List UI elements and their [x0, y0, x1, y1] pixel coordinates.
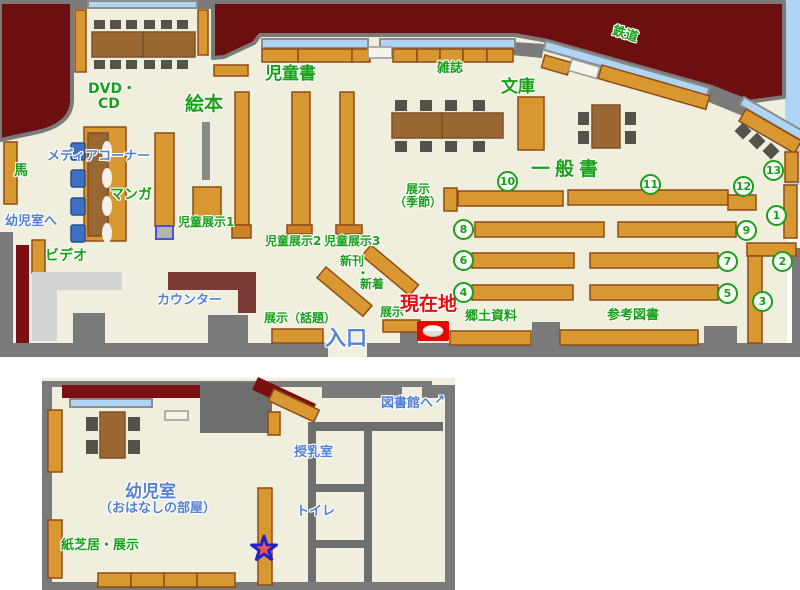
room-wall: [308, 540, 372, 548]
label-kids-display-3: 児童展示3: [324, 235, 380, 248]
bookshelf: [463, 49, 487, 62]
table: [592, 105, 620, 148]
bookshelf: [235, 92, 249, 225]
wall-right: [445, 392, 455, 590]
table: [92, 32, 143, 57]
label-bunko: 文庫: [501, 79, 535, 97]
bookshelf: [292, 92, 310, 225]
bookshelf: [393, 49, 417, 62]
wall-segment: [62, 385, 200, 398]
wall: [208, 315, 248, 344]
shelf-number-1: 1: [766, 205, 787, 226]
label-kamishibai-display: 紙芝居・展示: [61, 539, 139, 553]
bookshelf: [48, 520, 62, 578]
label-current-location: 現在地: [400, 295, 457, 315]
label-new-arrivals-2: 新着: [360, 278, 384, 291]
table: [392, 113, 442, 138]
label-media-corner: メディアコーナー: [47, 150, 150, 164]
shelf-number-13: 13: [763, 160, 784, 181]
shelf-number-8: 8: [453, 219, 474, 240]
room-wall: [364, 430, 372, 582]
media-seat: [102, 223, 112, 243]
bookshelf: [131, 573, 164, 587]
exterior-block-topleft: [0, 2, 72, 140]
bookshelf: [198, 10, 208, 55]
bookshelf-6: [472, 253, 574, 268]
chair: [71, 198, 85, 215]
label-magazines: 雑誌: [437, 62, 463, 76]
wall: [196, 0, 214, 9]
chair: [71, 170, 85, 187]
window: [262, 39, 368, 48]
picture-book-stand: [202, 122, 210, 180]
bookshelf-4: [472, 285, 573, 300]
label-general-books: 一般書: [531, 160, 603, 180]
display-stand: [156, 226, 173, 239]
bookshelf: [298, 49, 352, 62]
label-topic-display: 展示（話題）: [264, 312, 336, 325]
bookshelf-10: [458, 191, 563, 206]
shelf-number-2: 2: [772, 251, 793, 272]
wall-bottom-left: [0, 343, 328, 357]
bookshelf-12: [728, 195, 756, 210]
room-wall: [308, 484, 372, 492]
window: [88, 1, 197, 8]
label-kids-room: 幼児室: [125, 484, 176, 502]
media-seat: [102, 168, 112, 188]
bookshelf-5: [590, 285, 718, 300]
bookshelf: [214, 65, 248, 76]
bookshelf-7: [590, 253, 718, 268]
bookshelf: [487, 49, 513, 62]
shelf-number-4: 4: [453, 282, 474, 303]
shelf-endcap: [232, 225, 251, 238]
shelf-number-11: 11: [640, 174, 661, 195]
label-to-library: 図書館へ: [381, 397, 433, 411]
shelf-number-12: 12: [733, 176, 754, 197]
shelf-number-7: 7: [717, 251, 738, 272]
shelf-endcap: [287, 225, 312, 234]
label-entrance: 入口: [325, 327, 367, 349]
bookshelf: [98, 573, 131, 587]
shelf-number-5: 5: [717, 283, 738, 304]
bookshelf: [340, 92, 354, 225]
label-kids-display-2: 児童展示2: [265, 235, 321, 248]
label-counter: カウンター: [157, 294, 222, 308]
bookshelf-9: [618, 222, 736, 237]
reference-books-shelf: [560, 330, 698, 345]
shelf-number-6: 6: [453, 250, 474, 271]
label-childrens-books: 児童書: [265, 66, 316, 84]
label-manga: マンガ: [110, 188, 152, 203]
display-shelf: [272, 329, 323, 343]
wall-segment-left: [16, 245, 29, 343]
wall-right: [792, 248, 800, 357]
wall: [704, 326, 737, 344]
display-stand: [368, 47, 392, 58]
label-story-room: （おはなしの部屋）: [99, 502, 216, 516]
bookshelf: [164, 573, 197, 587]
library-floor-map: 絵本 児童書 雑誌 文庫 鉄道 一般書 展示 （季節） DVD・ CD メディア…: [0, 0, 800, 590]
arrow-icon: ↗: [434, 394, 445, 408]
bookshelf: [262, 49, 298, 62]
label-reference-books: 参考図書: [607, 309, 659, 323]
window: [380, 39, 515, 48]
bookshelf: [518, 97, 544, 150]
shelf-number-10: 10: [497, 171, 518, 192]
label-dvd-cd-1: DVD・: [88, 82, 136, 97]
wall: [532, 322, 560, 344]
display-shelf: [383, 320, 420, 332]
wall-left: [0, 232, 13, 344]
table: [442, 113, 503, 138]
wall: [73, 313, 105, 344]
room-wall: [308, 422, 443, 431]
label-seasonal-display-2: （季節）: [394, 196, 442, 209]
label-seasonal-display-1: 展示: [406, 183, 430, 196]
bookshelf: [32, 240, 45, 273]
chair: [71, 225, 85, 242]
label-video: ビデオ: [45, 249, 87, 264]
label-to-kids-room: 幼児室へ: [5, 215, 57, 229]
window: [70, 399, 152, 407]
bookshelf: [48, 410, 62, 472]
table: [143, 32, 195, 57]
bookshelf: [75, 10, 86, 72]
bookshelf: [155, 133, 174, 226]
bookshelf: [197, 573, 235, 587]
label-picture-books: 絵本: [185, 95, 223, 115]
label-dvd-cd-2: CD: [98, 97, 120, 112]
label-nursing-room: 授乳室: [294, 446, 333, 460]
display-shelf: [193, 187, 221, 216]
label-horse: 馬: [14, 164, 28, 179]
label-kids-display-1: 児童展示1: [178, 216, 234, 229]
local-materials-shelf: [450, 331, 531, 345]
display-stand: [165, 411, 188, 420]
shelf-endcap: [336, 225, 362, 234]
label-toilet: トイレ: [296, 505, 335, 519]
bookshelf: [444, 188, 457, 211]
bookshelf: [268, 412, 280, 435]
bookshelf-8: [475, 222, 604, 237]
table: [100, 412, 125, 458]
shelf-number-9: 9: [736, 220, 757, 241]
shelf-number-3: 3: [752, 291, 773, 312]
bookshelf-13: [785, 152, 798, 182]
label-local-materials: 郷土資料: [465, 310, 517, 324]
